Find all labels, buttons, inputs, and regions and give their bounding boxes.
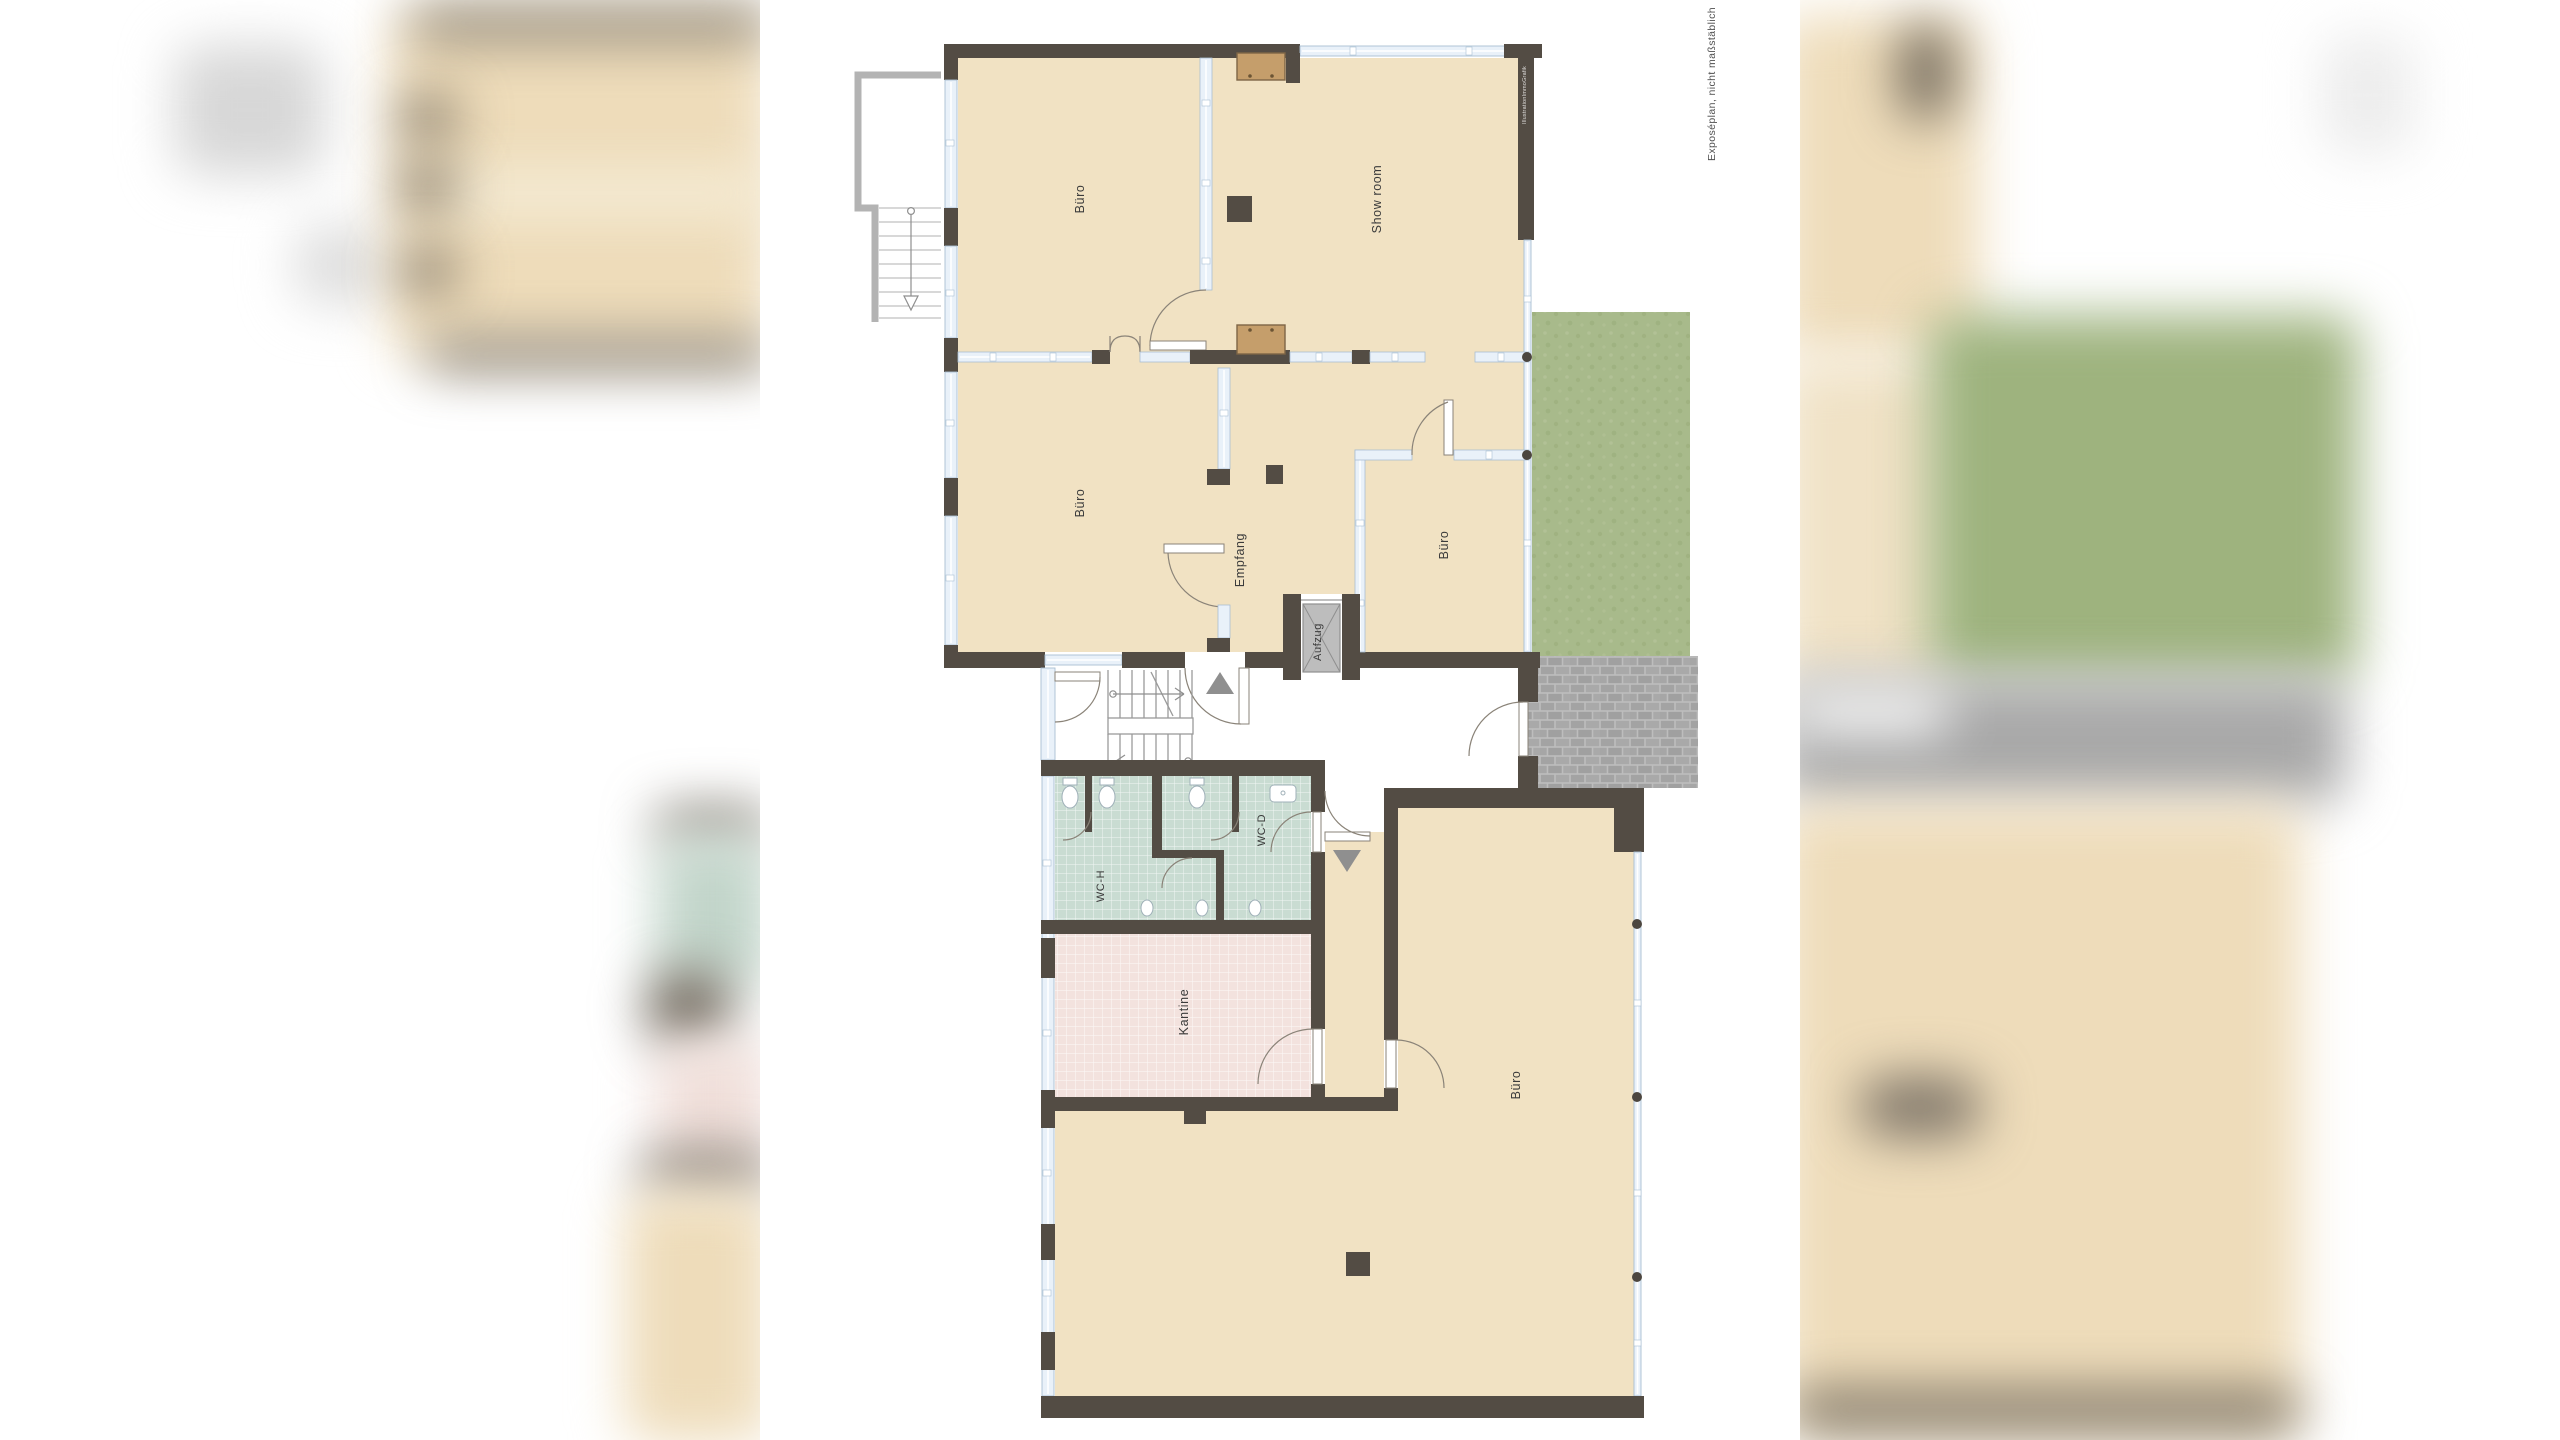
blur-stair-gray bbox=[175, 45, 325, 175]
background-blur-right bbox=[1800, 0, 2560, 1440]
blur-teal bbox=[655, 838, 760, 988]
blur-gray-top-smudge bbox=[2320, 35, 2415, 155]
blur-dark-strip-2 bbox=[640, 1155, 760, 1187]
room-label-showroom: Show room bbox=[1370, 165, 1384, 234]
room-label-wc-h: WC-H bbox=[1095, 870, 1107, 902]
blur-dark-strip bbox=[655, 810, 760, 838]
blur-light-band bbox=[430, 172, 760, 214]
blur-white-sliver bbox=[1800, 692, 1950, 734]
terrace-paving bbox=[1526, 656, 1698, 788]
wc-divider-wall bbox=[1152, 776, 1162, 858]
room-label-buero-right: Büro bbox=[1437, 531, 1451, 560]
plan-disclaimer: Exposéplan, nicht maßstäblich bbox=[1706, 7, 1718, 161]
floor-plan: IllustrationImmoGrafik bbox=[760, 0, 1800, 1440]
room-label-empfang: Empfang bbox=[1233, 533, 1247, 587]
blur-beige-bottom bbox=[625, 1192, 760, 1440]
blur-dark-spot bbox=[648, 972, 730, 1044]
upper-building: IllustrationImmoGrafik bbox=[858, 44, 1542, 724]
blur-garden bbox=[1928, 315, 2358, 680]
external-stair-direction-arrow bbox=[904, 208, 918, 310]
sideboard-divider bbox=[1237, 325, 1285, 354]
background-blur-left bbox=[0, 0, 760, 1440]
entrance-arrow-up bbox=[1206, 672, 1234, 694]
blur-beige-edge bbox=[1800, 15, 1980, 355]
wall-watermark: IllustrationImmoGrafik bbox=[1522, 66, 1528, 124]
sideboard-top bbox=[1237, 53, 1285, 80]
elevator: Aufzug bbox=[1283, 594, 1360, 680]
pillar-upper bbox=[1227, 196, 1252, 222]
room-label-buero-mid: Büro bbox=[1073, 489, 1087, 518]
pillar-stub bbox=[1184, 1111, 1206, 1124]
room-label-buero-top: Büro bbox=[1073, 185, 1087, 214]
blur-wall-dark-2 bbox=[398, 168, 458, 206]
hall-terrace-door bbox=[1469, 668, 1538, 788]
wc-stall-wall-2 bbox=[1232, 776, 1239, 832]
blur-wall-bottom bbox=[1800, 1392, 2300, 1428]
stair-landing bbox=[1108, 718, 1193, 734]
blur-pink bbox=[655, 1040, 760, 1172]
pillar-empfang bbox=[1266, 465, 1283, 484]
lower-building: WC-H WC-D Kantine bbox=[1041, 760, 1644, 1418]
garden-area bbox=[1532, 312, 1690, 656]
blur-dark-smudge-lower bbox=[1860, 1078, 1980, 1136]
blur-wall-mid bbox=[425, 342, 760, 368]
room-label-buero-lower: Büro bbox=[1509, 1071, 1523, 1100]
blur-wall-top bbox=[410, 10, 760, 36]
external-staircase bbox=[858, 75, 941, 322]
stair-arrow-up bbox=[1110, 688, 1184, 700]
empfang-entrance-door bbox=[1185, 668, 1249, 724]
hall-door-west bbox=[1055, 672, 1100, 722]
blur-wall-edge bbox=[1900, 25, 1952, 120]
buero-lower-floor-right bbox=[1398, 808, 1638, 1396]
blur-stair-gray-2 bbox=[295, 225, 385, 305]
blur-wall-dark-3 bbox=[398, 252, 458, 290]
room-label-aufzug: Aufzug bbox=[1312, 623, 1324, 661]
room-label-wc-d: WC-D bbox=[1256, 814, 1268, 846]
blur-wall-dark-1 bbox=[398, 98, 458, 136]
plan-page: IllustrationImmoGrafik bbox=[760, 0, 1800, 1440]
lower-west-facade bbox=[1041, 776, 1055, 1396]
corridor-floor bbox=[1325, 832, 1384, 1111]
pillar-lower bbox=[1346, 1252, 1370, 1276]
room-label-kantine: Kantine bbox=[1177, 989, 1191, 1036]
